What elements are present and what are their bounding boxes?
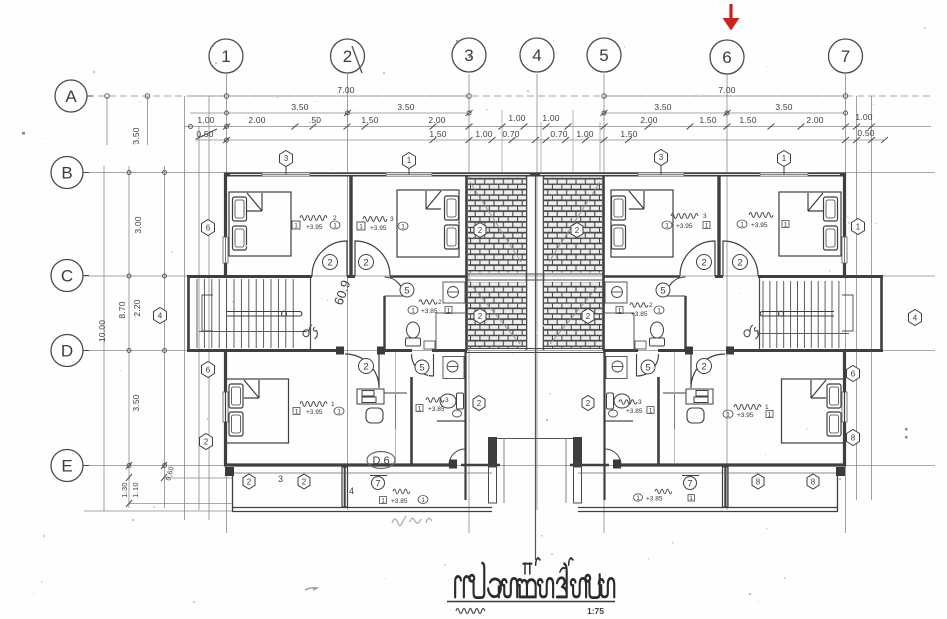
- svg-text:1: 1: [726, 412, 730, 419]
- svg-text:1.00: 1.00: [475, 129, 492, 139]
- svg-text:1: 1: [337, 409, 341, 416]
- svg-text:1.00: 1.00: [508, 113, 525, 123]
- svg-text:2: 2: [477, 399, 482, 408]
- svg-text:1: 1: [418, 406, 422, 413]
- svg-text:2: 2: [363, 258, 368, 269]
- svg-text:1: 1: [333, 223, 337, 230]
- svg-text:8: 8: [756, 478, 761, 487]
- svg-text:10.00: 10.00: [97, 320, 107, 342]
- svg-text:1.50: 1.50: [699, 115, 716, 125]
- svg-text:2: 2: [586, 399, 591, 408]
- svg-text:.50: .50: [309, 115, 321, 125]
- svg-text:3: 3: [445, 397, 449, 404]
- svg-text:1.00: 1.00: [542, 113, 559, 123]
- svg-text:1:75: 1:75: [587, 606, 604, 616]
- svg-text:1: 1: [359, 224, 363, 231]
- svg-text:1.30: 1.30: [120, 482, 129, 497]
- svg-text:6: 6: [722, 48, 731, 67]
- svg-text:1: 1: [407, 156, 412, 165]
- svg-text:2.20: 2.20: [132, 299, 142, 316]
- svg-text:+3.95: +3.95: [676, 223, 693, 230]
- svg-text:1: 1: [784, 222, 788, 229]
- svg-text:1: 1: [689, 495, 693, 502]
- svg-text:1: 1: [740, 222, 744, 229]
- svg-text:5: 5: [599, 46, 608, 65]
- svg-text:0.70: 0.70: [502, 129, 519, 139]
- svg-text:4: 4: [158, 312, 163, 321]
- svg-text:2: 2: [363, 362, 368, 373]
- svg-text:1.50: 1.50: [739, 115, 756, 125]
- svg-text:1: 1: [294, 223, 298, 230]
- svg-text:+3.95: +3.95: [737, 412, 754, 419]
- svg-text:7: 7: [841, 47, 850, 66]
- svg-text:4: 4: [913, 314, 918, 323]
- svg-text:2: 2: [204, 438, 209, 447]
- svg-text:+3.95: +3.95: [306, 224, 323, 231]
- svg-text:1.00: 1.00: [855, 112, 872, 122]
- svg-text:5: 5: [404, 286, 409, 297]
- svg-text:+3.85: +3.85: [626, 408, 643, 415]
- svg-text:5: 5: [645, 363, 650, 374]
- svg-text:2: 2: [575, 226, 580, 235]
- svg-text:1: 1: [705, 223, 709, 230]
- svg-text:1: 1: [295, 409, 299, 416]
- svg-text:3: 3: [464, 46, 473, 65]
- svg-text:4: 4: [532, 46, 541, 65]
- svg-text:1: 1: [401, 224, 405, 231]
- svg-text:1.50: 1.50: [429, 129, 446, 139]
- svg-text:1: 1: [618, 308, 622, 315]
- svg-text:+3.85: +3.85: [428, 406, 445, 413]
- svg-text:2: 2: [478, 226, 483, 235]
- svg-text:B: B: [61, 164, 72, 183]
- svg-text:D.6: D.6: [372, 455, 389, 467]
- svg-text:+3.95: +3.95: [306, 409, 323, 416]
- svg-text:3: 3: [703, 213, 707, 220]
- svg-text:8.70: 8.70: [117, 301, 127, 318]
- svg-text:D: D: [61, 342, 73, 361]
- svg-text:3.50: 3.50: [397, 102, 414, 112]
- svg-text:1: 1: [636, 495, 640, 502]
- svg-text:2: 2: [649, 302, 653, 309]
- svg-text:3: 3: [278, 474, 283, 484]
- svg-text:0.70: 0.70: [550, 129, 567, 139]
- svg-text:1: 1: [331, 401, 335, 408]
- svg-text:1: 1: [411, 308, 415, 315]
- svg-text:2: 2: [737, 258, 742, 269]
- svg-text:1: 1: [856, 223, 861, 232]
- svg-text:8: 8: [811, 478, 816, 487]
- svg-text:1.50: 1.50: [620, 129, 637, 139]
- svg-text:1: 1: [782, 154, 787, 163]
- svg-text:+3.85: +3.85: [421, 308, 438, 315]
- svg-text:0.50: 0.50: [857, 128, 874, 138]
- svg-text:6: 6: [206, 366, 211, 375]
- svg-text:1: 1: [765, 404, 769, 411]
- svg-text:3.50: 3.50: [131, 127, 141, 144]
- svg-text:2: 2: [343, 47, 352, 66]
- svg-text:3.00: 3.00: [133, 216, 143, 233]
- svg-text:7.00: 7.00: [718, 85, 735, 95]
- svg-text:1.10: 1.10: [131, 482, 140, 497]
- svg-text:3.50: 3.50: [775, 102, 792, 112]
- svg-text:3: 3: [284, 154, 289, 163]
- svg-text:2.00: 2.00: [806, 115, 823, 125]
- svg-text:2: 2: [701, 362, 706, 373]
- svg-text:1: 1: [665, 223, 669, 230]
- svg-text:2: 2: [586, 312, 591, 321]
- svg-text:2.00: 2.00: [640, 115, 657, 125]
- svg-text:5: 5: [419, 363, 424, 374]
- svg-text:3: 3: [638, 399, 642, 406]
- svg-text:2: 2: [701, 258, 706, 269]
- svg-text:E: E: [61, 457, 72, 476]
- svg-text:6: 6: [851, 370, 856, 379]
- svg-text:+3.85: +3.85: [631, 311, 648, 318]
- svg-text:+3.95: +3.95: [370, 225, 387, 232]
- svg-text:3: 3: [390, 216, 394, 223]
- svg-text:1.50: 1.50: [361, 115, 378, 125]
- svg-text:1: 1: [768, 412, 772, 419]
- svg-text:2: 2: [327, 258, 332, 269]
- svg-text:1: 1: [221, 47, 230, 66]
- svg-text:+3.85: +3.85: [646, 496, 663, 503]
- svg-text:3.50: 3.50: [654, 102, 671, 112]
- svg-text:2: 2: [247, 478, 252, 487]
- svg-text:7: 7: [687, 479, 692, 490]
- svg-text:2: 2: [438, 299, 442, 306]
- svg-text:A: A: [65, 87, 77, 106]
- svg-text:1.00: 1.00: [576, 129, 593, 139]
- svg-text:C: C: [61, 267, 73, 286]
- svg-text:7.00: 7.00: [337, 85, 354, 95]
- svg-text:+3.95: +3.95: [751, 222, 768, 229]
- svg-text:1: 1: [657, 308, 661, 315]
- svg-text:6: 6: [206, 224, 211, 233]
- svg-text:8: 8: [851, 434, 856, 443]
- svg-text:3.50: 3.50: [131, 394, 141, 411]
- svg-text:4: 4: [349, 486, 354, 496]
- svg-text:1.00: 1.00: [197, 115, 214, 125]
- svg-text:2: 2: [478, 312, 483, 321]
- svg-text:+3.85: +3.85: [391, 498, 408, 505]
- svg-text:1: 1: [447, 308, 451, 315]
- svg-text:7: 7: [375, 479, 380, 490]
- svg-text:2.00: 2.00: [248, 115, 265, 125]
- svg-text:3: 3: [659, 153, 664, 162]
- svg-text:3.50: 3.50: [291, 102, 308, 112]
- svg-text:1: 1: [649, 408, 653, 415]
- svg-text:2.00: 2.00: [428, 115, 445, 125]
- svg-text:2: 2: [302, 478, 307, 487]
- svg-text:5: 5: [660, 286, 665, 297]
- svg-text:1: 1: [421, 497, 425, 504]
- svg-text:1: 1: [381, 498, 385, 505]
